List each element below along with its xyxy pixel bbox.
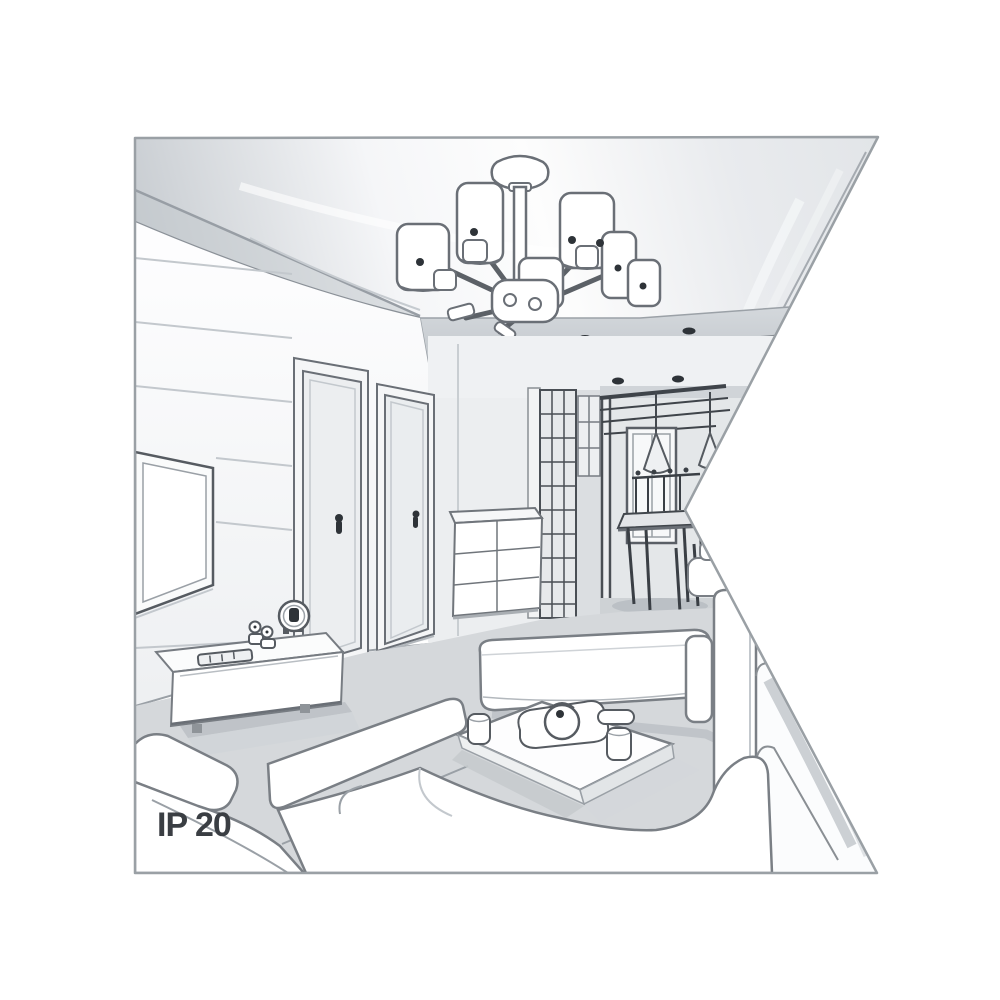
tv-screen [143,463,206,602]
ip-rating-label: IP 20 [157,806,231,844]
cup [468,714,490,744]
dish [598,710,634,724]
spotlight-icon [683,328,696,335]
ottoman [480,630,713,710]
chandelier-hub [492,280,558,322]
sideboard-foot [300,704,310,713]
tv [135,452,213,618]
sideboard-foot [192,724,202,733]
partition-grid-fragment [578,396,600,476]
ip20-room-illustration: IP 20 [0,0,1000,1000]
drawer-chest [450,508,542,618]
teapot [545,705,579,739]
sofa-armrest-front [686,636,712,722]
room-sketch-canvas: IP 20 [0,0,1000,1000]
sofa-back-cushion [688,558,742,596]
cup [607,728,631,760]
spotlight-icon [612,378,624,385]
spotlight-icon [672,376,684,383]
door-panel [303,371,361,665]
door-right [377,384,434,653]
